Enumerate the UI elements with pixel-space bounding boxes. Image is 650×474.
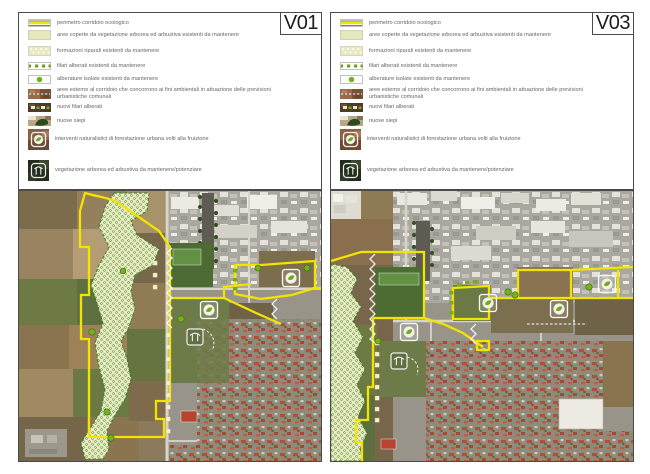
legend-label: nuovi filari alberati bbox=[369, 104, 414, 111]
circle-tree-icon bbox=[28, 129, 49, 150]
legend-row-perimeter: perimetro corridoio ecologico bbox=[340, 19, 441, 27]
square-tree-icon bbox=[28, 160, 49, 181]
panel-title-v03: V03 bbox=[592, 12, 634, 35]
photo-squares-swatch bbox=[28, 103, 51, 112]
vegetation-maintain-icon bbox=[391, 353, 407, 369]
legend-label: vegetazione arborea ed arbustiva da mant… bbox=[367, 167, 514, 174]
legend-label: nuove siepi bbox=[57, 118, 85, 125]
legend-label: vegetazione arborea ed arbustiva da mant… bbox=[55, 167, 202, 174]
farmland-fields bbox=[19, 191, 167, 461]
legend-row-riparian: formazioni riparali esistenti da mantene… bbox=[340, 46, 471, 56]
aerial-map-v01 bbox=[19, 191, 321, 461]
legend-label: aree coperte da vegetazione arborea ed a… bbox=[369, 32, 551, 39]
legend-row-riparian: formazioni riparali esistenti da mantene… bbox=[28, 46, 159, 56]
legend-v03: V03 perimetro corridoio ecologico aree c… bbox=[330, 12, 634, 190]
forestation-circle-icon bbox=[599, 276, 616, 293]
dot-hatch-swatch bbox=[28, 46, 51, 56]
khaki-fill-swatch bbox=[340, 30, 363, 40]
map-v01 bbox=[18, 190, 322, 462]
legend-row-perimeter: perimetro corridoio ecologico bbox=[28, 19, 129, 27]
legend-label: aree coperte da vegetazione arborea ed a… bbox=[57, 32, 239, 39]
khaki-fill-swatch bbox=[28, 30, 51, 40]
photo-hedge-swatch bbox=[340, 116, 363, 126]
forestation-circle-icon bbox=[201, 302, 218, 319]
vegetation-maintain-icon bbox=[187, 329, 203, 345]
red-roof-building bbox=[181, 411, 197, 422]
photo-hedge-swatch bbox=[28, 116, 51, 126]
existing-tree-row-squares bbox=[233, 269, 237, 290]
legend-row-external-areas: aree esterne al corridoio che concorrono… bbox=[340, 87, 614, 100]
green-dash-swatch bbox=[28, 62, 51, 70]
map-v03 bbox=[330, 190, 634, 462]
circle-tree-icon bbox=[340, 129, 361, 150]
legend-label: alberature isolate esistenti da mantener… bbox=[369, 76, 470, 83]
green-dot-swatch bbox=[340, 75, 363, 84]
legend-v01: V01 perimetro corridoio ecologico aree c… bbox=[18, 12, 322, 190]
legend-row-forestation: interventi naturalistici di forestazione… bbox=[28, 129, 209, 150]
forestation-circle-icon bbox=[480, 295, 497, 312]
legend-label: filari alberati esistenti da mantenere bbox=[369, 63, 457, 70]
legend-row-tree-rows: filari alberati esistenti da mantenere bbox=[28, 62, 145, 70]
legend-row-tree-rows: filari alberati esistenti da mantenere bbox=[340, 62, 457, 70]
green-dash-swatch bbox=[340, 62, 363, 70]
plan-sheet: V01 perimetro corridoio ecologico aree c… bbox=[0, 0, 650, 474]
photo-squares-swatch bbox=[340, 103, 363, 112]
legend-label: nuovi filari alberati bbox=[57, 104, 102, 111]
red-roof-building bbox=[381, 439, 396, 449]
legend-row-isolated-trees: alberature isolate esistenti da mantener… bbox=[28, 75, 158, 84]
panel-title-v01: V01 bbox=[280, 12, 322, 35]
legend-label: alberature isolate esistenti da mantener… bbox=[57, 76, 158, 83]
legend-label: aree esterne al corridoio che concorrono… bbox=[57, 87, 302, 100]
legend-row-covered-areas: aree coperte da vegetazione arborea ed a… bbox=[340, 30, 551, 40]
aerial-map-v03 bbox=[331, 191, 633, 461]
forestation-circle-icon bbox=[283, 270, 300, 287]
legend-label: aree esterne al corridoio che concorrono… bbox=[369, 87, 614, 100]
legend-label: formazioni riparali esistenti da mantene… bbox=[369, 48, 471, 55]
yellow-line-swatch bbox=[28, 19, 51, 27]
power-station bbox=[25, 429, 67, 457]
square-tree-icon bbox=[340, 160, 361, 181]
panel-v01: V01 perimetro corridoio ecologico aree c… bbox=[18, 12, 322, 462]
legend-row-new-hedges: nuove siepi bbox=[28, 116, 85, 126]
legend-label: interventi naturalistici di forestazione… bbox=[55, 136, 209, 143]
legend-row-vegetation-maintain: vegetazione arborea ed arbustiva da mant… bbox=[340, 160, 514, 181]
legend-row-new-tree-rows: nuovi filari alberati bbox=[340, 103, 414, 112]
panel-v03: V03 perimetro corridoio ecologico aree c… bbox=[330, 12, 634, 462]
legend-row-external-areas: aree esterne al corridoio che concorrono… bbox=[28, 87, 302, 100]
legend-label: nuove siepi bbox=[369, 118, 397, 125]
photo-dash-swatch bbox=[28, 89, 51, 99]
green-dot-swatch bbox=[28, 75, 51, 84]
dot-hatch-swatch bbox=[340, 46, 363, 56]
legend-row-new-hedges: nuove siepi bbox=[340, 116, 397, 126]
legend-row-forestation: interventi naturalistici di forestazione… bbox=[340, 129, 521, 150]
photo-dash-swatch bbox=[340, 89, 363, 99]
yellow-line-swatch bbox=[340, 19, 363, 27]
forestation-circle-icon bbox=[401, 324, 418, 341]
legend-label: perimetro corridoio ecologico bbox=[369, 20, 441, 27]
legend-label: filari alberati esistenti da mantenere bbox=[57, 63, 145, 70]
legend-row-isolated-trees: alberature isolate esistenti da mantener… bbox=[340, 75, 470, 84]
legend-label: interventi naturalistici di forestazione… bbox=[367, 136, 521, 143]
legend-label: formazioni riparali esistenti da mantene… bbox=[57, 48, 159, 55]
legend-label: perimetro corridoio ecologico bbox=[57, 20, 129, 27]
legend-row-covered-areas: aree coperte da vegetazione arborea ed a… bbox=[28, 30, 239, 40]
forestation-circle-icon bbox=[551, 301, 568, 318]
legend-row-vegetation-maintain: vegetazione arborea ed arbustiva da mant… bbox=[28, 160, 202, 181]
legend-row-new-tree-rows: nuovi filari alberati bbox=[28, 103, 102, 112]
